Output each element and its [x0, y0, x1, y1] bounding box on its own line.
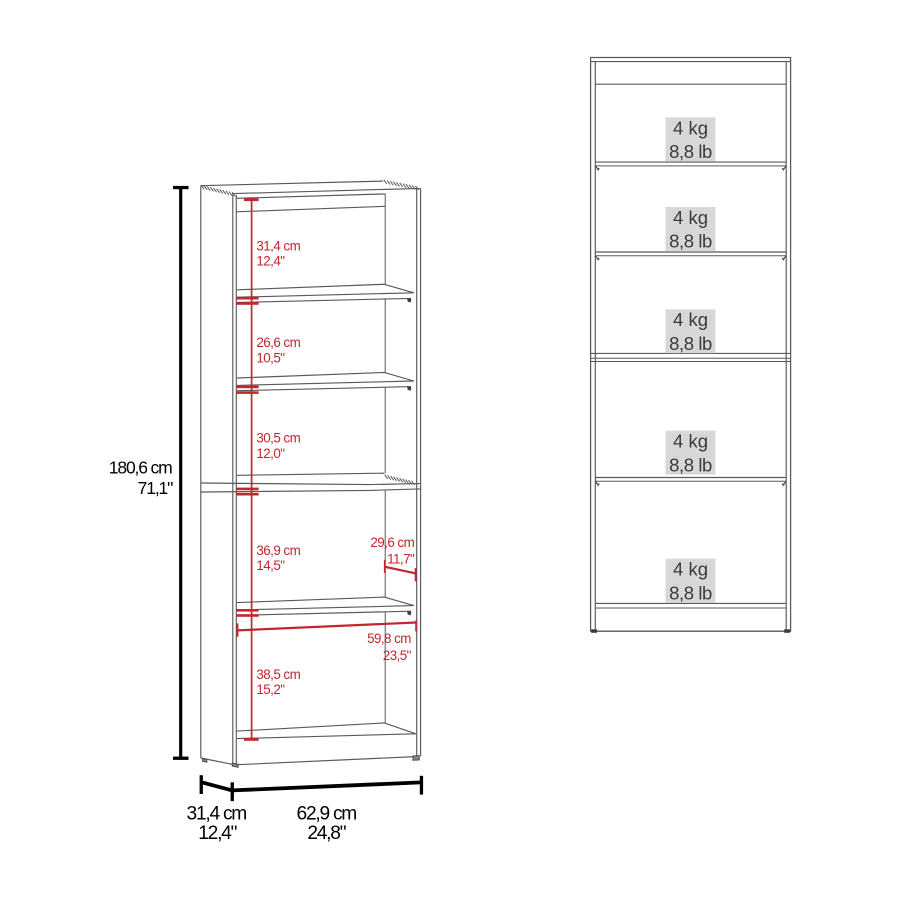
svg-text:4 kg: 4 kg [673, 559, 708, 580]
svg-text:4 kg: 4 kg [673, 207, 708, 228]
svg-text:12,4": 12,4" [256, 254, 285, 269]
svg-text:29,6 cm: 29,6 cm [370, 535, 414, 550]
svg-text:14,5": 14,5" [256, 558, 285, 573]
svg-text:12,4": 12,4" [198, 823, 236, 844]
svg-text:11,7": 11,7" [387, 551, 415, 566]
svg-text:8,8 lb: 8,8 lb [669, 231, 712, 252]
svg-text:12,0": 12,0" [256, 446, 285, 461]
svg-text:4 kg: 4 kg [673, 309, 708, 330]
svg-text:8,8 lb: 8,8 lb [669, 333, 712, 354]
svg-text:62,9 cm: 62,9 cm [297, 803, 357, 824]
svg-text:31,4 cm: 31,4 cm [256, 238, 300, 253]
svg-text:38,5 cm: 38,5 cm [256, 667, 300, 682]
svg-text:10,5": 10,5" [256, 351, 285, 366]
svg-text:8,8 lb: 8,8 lb [669, 454, 712, 475]
svg-text:23,5": 23,5" [383, 648, 412, 663]
svg-text:59,8 cm: 59,8 cm [367, 631, 411, 646]
svg-text:31,4 cm: 31,4 cm [187, 803, 247, 824]
svg-text:26,6 cm: 26,6 cm [256, 335, 300, 350]
svg-text:180,6 cm: 180,6 cm [109, 457, 172, 477]
svg-text:15,2": 15,2" [256, 682, 285, 697]
svg-text:71,1": 71,1" [138, 478, 173, 498]
svg-text:8,8 lb: 8,8 lb [669, 582, 712, 603]
svg-text:36,9 cm: 36,9 cm [256, 543, 300, 558]
svg-text:8,8 lb: 8,8 lb [669, 141, 712, 162]
svg-text:4 kg: 4 kg [673, 431, 708, 452]
svg-text:30,5 cm: 30,5 cm [256, 431, 300, 446]
svg-text:24,8": 24,8" [307, 823, 345, 844]
svg-text:4 kg: 4 kg [673, 117, 708, 138]
